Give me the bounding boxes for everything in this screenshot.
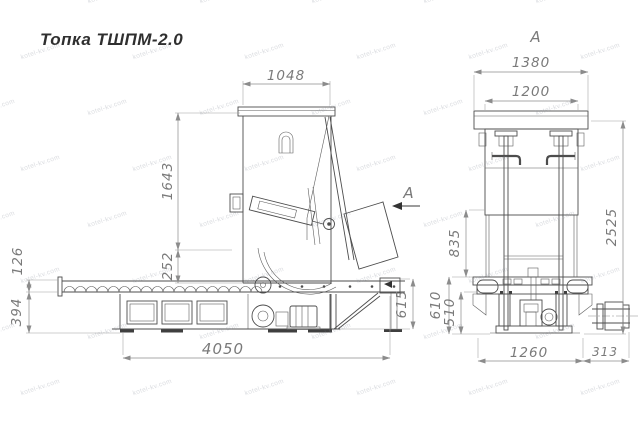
dim-column-height: 835 (447, 210, 485, 277)
rod-assembly-left (492, 131, 520, 330)
dim-label: 126 (10, 247, 26, 276)
screw-shaft (588, 302, 640, 330)
section-cut-arrow: А (392, 184, 420, 210)
dim-label: 1200 (512, 84, 550, 100)
dim-body-width: 1200 (485, 84, 578, 110)
view-label: А (529, 28, 541, 46)
dim-label: 615 (394, 290, 410, 319)
section-arrow-icon (392, 202, 402, 210)
dim-base-width: 1260 (478, 338, 583, 361)
dim-label: 2525 (604, 208, 620, 246)
dim-hopper-width: 1048 (243, 68, 330, 105)
dim-body-height: 1643 (160, 113, 240, 250)
rod-assembly-right (547, 131, 575, 330)
front-view: А (428, 28, 640, 361)
dim-label: 1048 (267, 68, 305, 84)
dim-label: 835 (447, 229, 463, 258)
dim-label: 252 (160, 252, 176, 281)
dim-leg-height: 510 (442, 292, 477, 334)
hydraulic-cylinder (249, 196, 334, 229)
dim-ash-box-height: 394 (9, 292, 120, 333)
dim-label: 4050 (202, 340, 244, 358)
motor (290, 306, 317, 327)
hopper-arch-slot (279, 132, 293, 153)
dim-shaft-length: 313 (583, 332, 629, 361)
dim-overall-length: 4050 (123, 296, 390, 358)
dim-mount-offset: 252 (160, 250, 243, 283)
drawing-sheet: Топка ТШПМ-2.0 kotel-kv.comkotel-kv.comk… (0, 0, 644, 430)
dim-frame-height: 610 (428, 277, 490, 334)
dim-cover-width: 1380 (474, 55, 588, 110)
drawing-canvas: 1048 1643 252 126 394 (0, 0, 644, 430)
side-view: 1048 1643 252 126 394 (9, 68, 420, 358)
dim-label: 313 (592, 345, 618, 359)
dim-label: 1380 (512, 55, 550, 71)
dim-label: 1643 (160, 162, 176, 200)
screw-flights (64, 287, 262, 293)
dim-label: 394 (9, 298, 25, 327)
dim-label: 510 (442, 298, 458, 327)
dim-trough-height: 126 (10, 247, 58, 292)
dim-label: 1260 (510, 345, 548, 361)
section-label: А (402, 184, 414, 202)
grate-hatched (344, 202, 398, 269)
